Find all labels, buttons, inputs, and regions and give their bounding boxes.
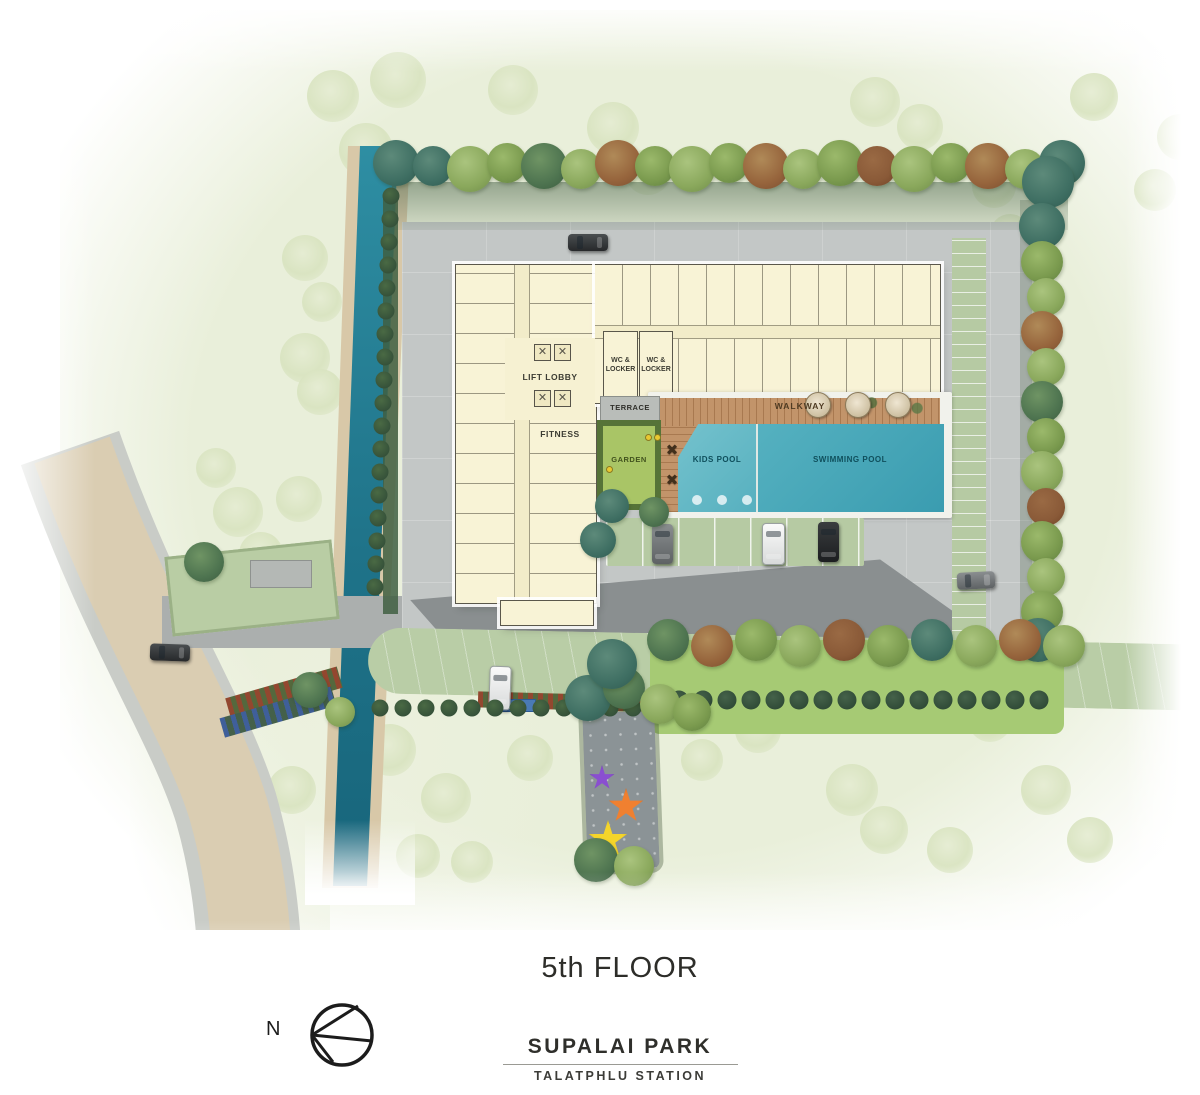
tree bbox=[817, 140, 863, 186]
tree bbox=[464, 700, 481, 717]
building-stub-south bbox=[500, 600, 594, 626]
tree bbox=[669, 146, 715, 192]
tree bbox=[368, 556, 385, 573]
tree bbox=[982, 691, 1001, 710]
tree bbox=[999, 619, 1041, 661]
tree bbox=[766, 691, 785, 710]
boundary-hedge-north bbox=[392, 182, 1068, 230]
tree bbox=[372, 441, 389, 458]
terrace: TERRACE bbox=[600, 396, 660, 421]
fountain-jet bbox=[717, 495, 727, 505]
tree bbox=[838, 691, 857, 710]
tree bbox=[325, 697, 355, 727]
tree bbox=[1043, 625, 1085, 667]
walkway-label: WALKWAY bbox=[740, 402, 860, 412]
tree bbox=[381, 234, 398, 251]
tree bbox=[372, 700, 389, 717]
tree bbox=[814, 691, 833, 710]
tree bbox=[595, 140, 641, 186]
tree bbox=[574, 838, 618, 882]
tree bbox=[958, 691, 977, 710]
fountain-jet bbox=[742, 495, 752, 505]
elevator-icon: ✕ bbox=[554, 344, 571, 361]
tree bbox=[1021, 521, 1063, 563]
tree bbox=[374, 395, 391, 412]
elevator-icon: ✕ bbox=[534, 344, 551, 361]
tree bbox=[380, 257, 397, 274]
utility-shed bbox=[250, 560, 312, 588]
tree bbox=[790, 691, 809, 710]
tree bbox=[742, 691, 761, 710]
tree bbox=[691, 625, 733, 667]
floor-title: 5th FLOOR bbox=[400, 952, 840, 985]
site-plan: ✕ ✕ ✕ ✕ LIFT LOBBY FITNESS WC & LOCKER W… bbox=[0, 0, 1200, 1095]
tree bbox=[1027, 348, 1065, 386]
car bbox=[762, 523, 785, 565]
tree bbox=[779, 625, 821, 667]
tree bbox=[735, 619, 777, 661]
north-label: N bbox=[266, 1018, 280, 1041]
terrace-label: TERRACE bbox=[610, 404, 650, 413]
tree bbox=[367, 579, 384, 596]
fountain-jet bbox=[692, 495, 702, 505]
swimming-pool bbox=[756, 424, 944, 512]
tree bbox=[1022, 156, 1074, 208]
garden-light-icon bbox=[654, 434, 661, 441]
tree bbox=[1006, 691, 1025, 710]
tree bbox=[487, 700, 504, 717]
kids-pool-label: KIDS POOL bbox=[678, 455, 756, 464]
garden-light-icon bbox=[606, 466, 613, 473]
tree bbox=[378, 303, 395, 320]
tree bbox=[614, 846, 654, 886]
garden-light-icon bbox=[645, 434, 652, 441]
garden-label: GARDEN bbox=[599, 456, 659, 465]
tree bbox=[1030, 691, 1049, 710]
elevator-icon: ✕ bbox=[554, 390, 571, 407]
tree bbox=[1021, 241, 1063, 283]
tree bbox=[1021, 311, 1063, 353]
north-arrow bbox=[302, 998, 376, 1072]
tree bbox=[580, 522, 616, 558]
wc-locker-room: WC & LOCKER bbox=[603, 331, 638, 401]
tree bbox=[395, 700, 412, 717]
elevator-icon: ✕ bbox=[534, 390, 551, 407]
lift-lobby-label: LIFT LOBBY bbox=[502, 373, 598, 383]
tree bbox=[718, 691, 737, 710]
tree bbox=[891, 146, 937, 192]
tree bbox=[383, 188, 400, 205]
tree bbox=[377, 326, 394, 343]
tree bbox=[382, 211, 399, 228]
tree bbox=[371, 487, 388, 504]
tree bbox=[639, 497, 669, 527]
tree bbox=[418, 700, 435, 717]
tree bbox=[965, 143, 1011, 189]
tree bbox=[373, 140, 419, 186]
tree bbox=[292, 672, 328, 708]
tree bbox=[1027, 558, 1065, 596]
car bbox=[818, 522, 839, 562]
table-icon: ✖ bbox=[666, 441, 679, 459]
tree bbox=[595, 489, 629, 523]
tree bbox=[1027, 278, 1065, 316]
tree bbox=[376, 349, 393, 366]
car bbox=[652, 524, 673, 564]
tree bbox=[441, 700, 458, 717]
tree bbox=[910, 691, 929, 710]
tree bbox=[184, 542, 224, 582]
tree bbox=[1027, 418, 1065, 456]
wc-locker-room: WC & LOCKER bbox=[639, 331, 673, 401]
project-subtitle: TALATPHLU STATION bbox=[455, 1069, 785, 1083]
tree bbox=[823, 619, 865, 661]
tree bbox=[379, 280, 396, 297]
umbrella-icon bbox=[885, 392, 911, 418]
tree bbox=[375, 372, 392, 389]
tree bbox=[1021, 451, 1063, 493]
tree bbox=[1021, 381, 1063, 423]
car bbox=[568, 234, 608, 251]
tree bbox=[533, 700, 550, 717]
tree bbox=[1027, 488, 1065, 526]
tree bbox=[673, 693, 711, 731]
car bbox=[150, 643, 191, 661]
tree bbox=[373, 418, 390, 435]
tree bbox=[587, 639, 637, 689]
tree bbox=[743, 143, 789, 189]
tree bbox=[911, 619, 953, 661]
tree bbox=[510, 700, 527, 717]
project-name: SUPALAI PARK bbox=[455, 1035, 785, 1059]
car bbox=[957, 571, 996, 590]
swimming-pool-label: SWIMMING POOL bbox=[760, 455, 940, 464]
tree bbox=[862, 691, 881, 710]
table-icon: ✖ bbox=[666, 471, 679, 489]
tree bbox=[521, 143, 567, 189]
tree bbox=[647, 619, 689, 661]
project-brand: SUPALAI PARK TALATPHLU STATION bbox=[455, 1035, 785, 1083]
tree bbox=[934, 691, 953, 710]
fitness-label: FITNESS bbox=[516, 430, 604, 440]
tree bbox=[886, 691, 905, 710]
brand-divider bbox=[503, 1064, 738, 1065]
tree bbox=[867, 625, 909, 667]
tree bbox=[447, 146, 493, 192]
tree bbox=[369, 533, 386, 550]
tree bbox=[371, 464, 388, 481]
tree bbox=[370, 510, 387, 527]
tree bbox=[955, 625, 997, 667]
